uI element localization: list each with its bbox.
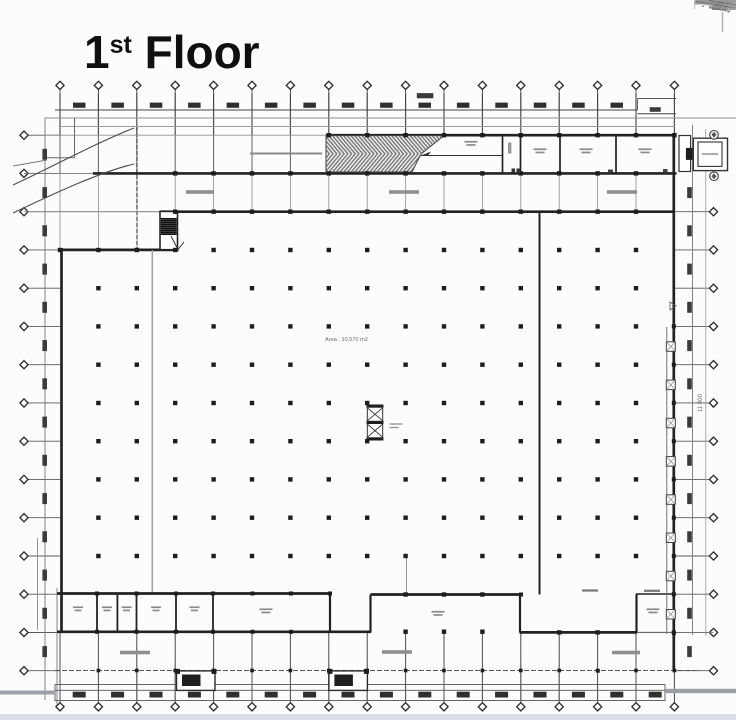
svg-text:11 000: 11 000 <box>698 393 704 412</box>
svg-text:Area : 10,570 m2: Area : 10,570 m2 <box>325 337 368 343</box>
